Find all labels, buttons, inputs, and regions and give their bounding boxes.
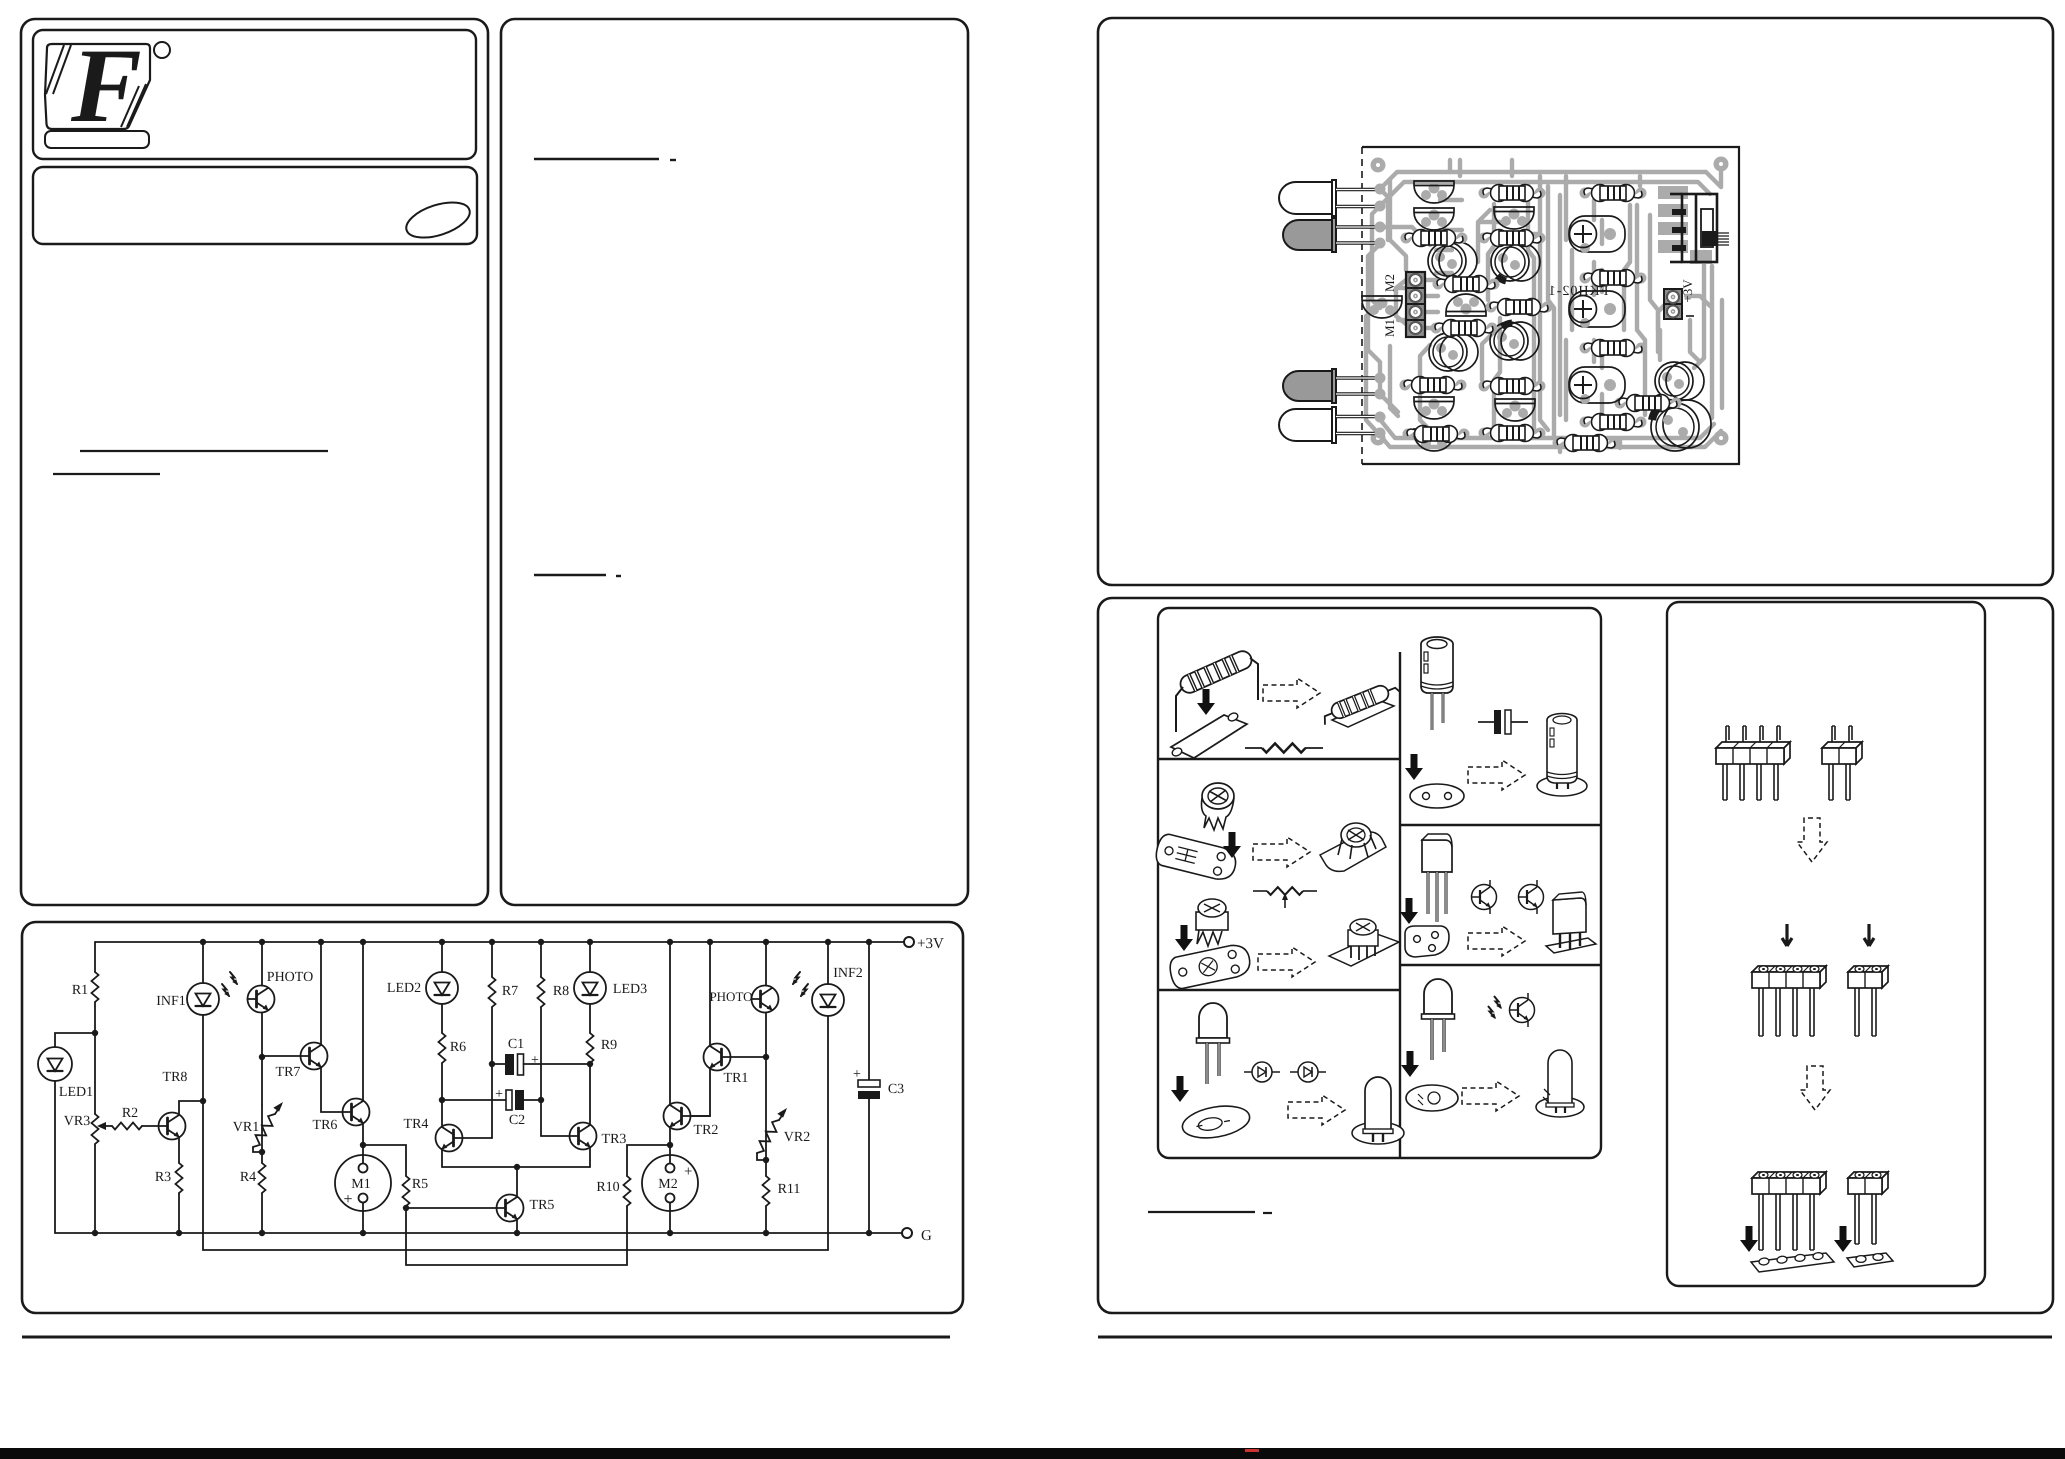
svg-text:VR3: VR3	[64, 1114, 90, 1129]
svg-text:TR1: TR1	[724, 1071, 749, 1086]
svg-text:R3: R3	[155, 1170, 171, 1185]
svg-text:TR4: TR4	[404, 1117, 429, 1132]
svg-text:FKH02-1: FKH02-1	[1548, 284, 1609, 299]
svg-text:R9: R9	[601, 1038, 617, 1053]
svg-text:+: +	[343, 1191, 352, 1208]
svg-text:+: +	[684, 1164, 692, 1180]
svg-text:R7: R7	[502, 984, 518, 999]
svg-text:R6: R6	[450, 1040, 466, 1055]
svg-text:PHOTO: PHOTO	[709, 989, 752, 1004]
svg-text:LED3: LED3	[613, 982, 647, 997]
svg-text:LED1: LED1	[59, 1085, 93, 1100]
svg-text:TR7: TR7	[276, 1065, 301, 1080]
svg-text:+3V: +3V	[917, 936, 944, 952]
svg-text:TR8: TR8	[163, 1070, 188, 1085]
svg-text:C2: C2	[509, 1113, 525, 1128]
svg-text:R2: R2	[122, 1106, 138, 1121]
svg-text:M1: M1	[351, 1177, 370, 1192]
svg-text:R8: R8	[553, 984, 569, 999]
svg-text:LED2: LED2	[387, 981, 421, 996]
svg-text:C1: C1	[508, 1037, 524, 1052]
svg-text:+: +	[853, 1067, 861, 1082]
svg-text:PHOTO: PHOTO	[267, 970, 313, 985]
svg-text:+: +	[495, 1087, 503, 1102]
svg-text:R5: R5	[412, 1177, 428, 1192]
svg-text:VR1: VR1	[233, 1120, 259, 1135]
svg-text:TR6: TR6	[313, 1118, 338, 1133]
svg-text:TR2: TR2	[694, 1123, 719, 1138]
svg-text:TR5: TR5	[530, 1198, 555, 1213]
svg-text:R1: R1	[72, 983, 88, 998]
svg-text:M2: M2	[1382, 274, 1397, 292]
svg-text:TR3: TR3	[602, 1132, 627, 1147]
svg-text:M2: M2	[658, 1177, 677, 1192]
svg-text:VR2: VR2	[784, 1130, 810, 1145]
svg-text:+: +	[531, 1053, 539, 1068]
svg-text:+3V: +3V	[1680, 279, 1695, 303]
svg-text:R10: R10	[596, 1180, 619, 1195]
svg-text:R4: R4	[240, 1170, 256, 1185]
svg-text:G: G	[921, 1228, 932, 1244]
svg-text:F: F	[70, 27, 142, 144]
svg-text:INF2: INF2	[833, 966, 863, 981]
svg-text:C3: C3	[888, 1082, 904, 1097]
svg-text:R11: R11	[778, 1182, 801, 1197]
svg-text:M1: M1	[1382, 319, 1397, 337]
svg-text:INF1: INF1	[156, 994, 186, 1009]
